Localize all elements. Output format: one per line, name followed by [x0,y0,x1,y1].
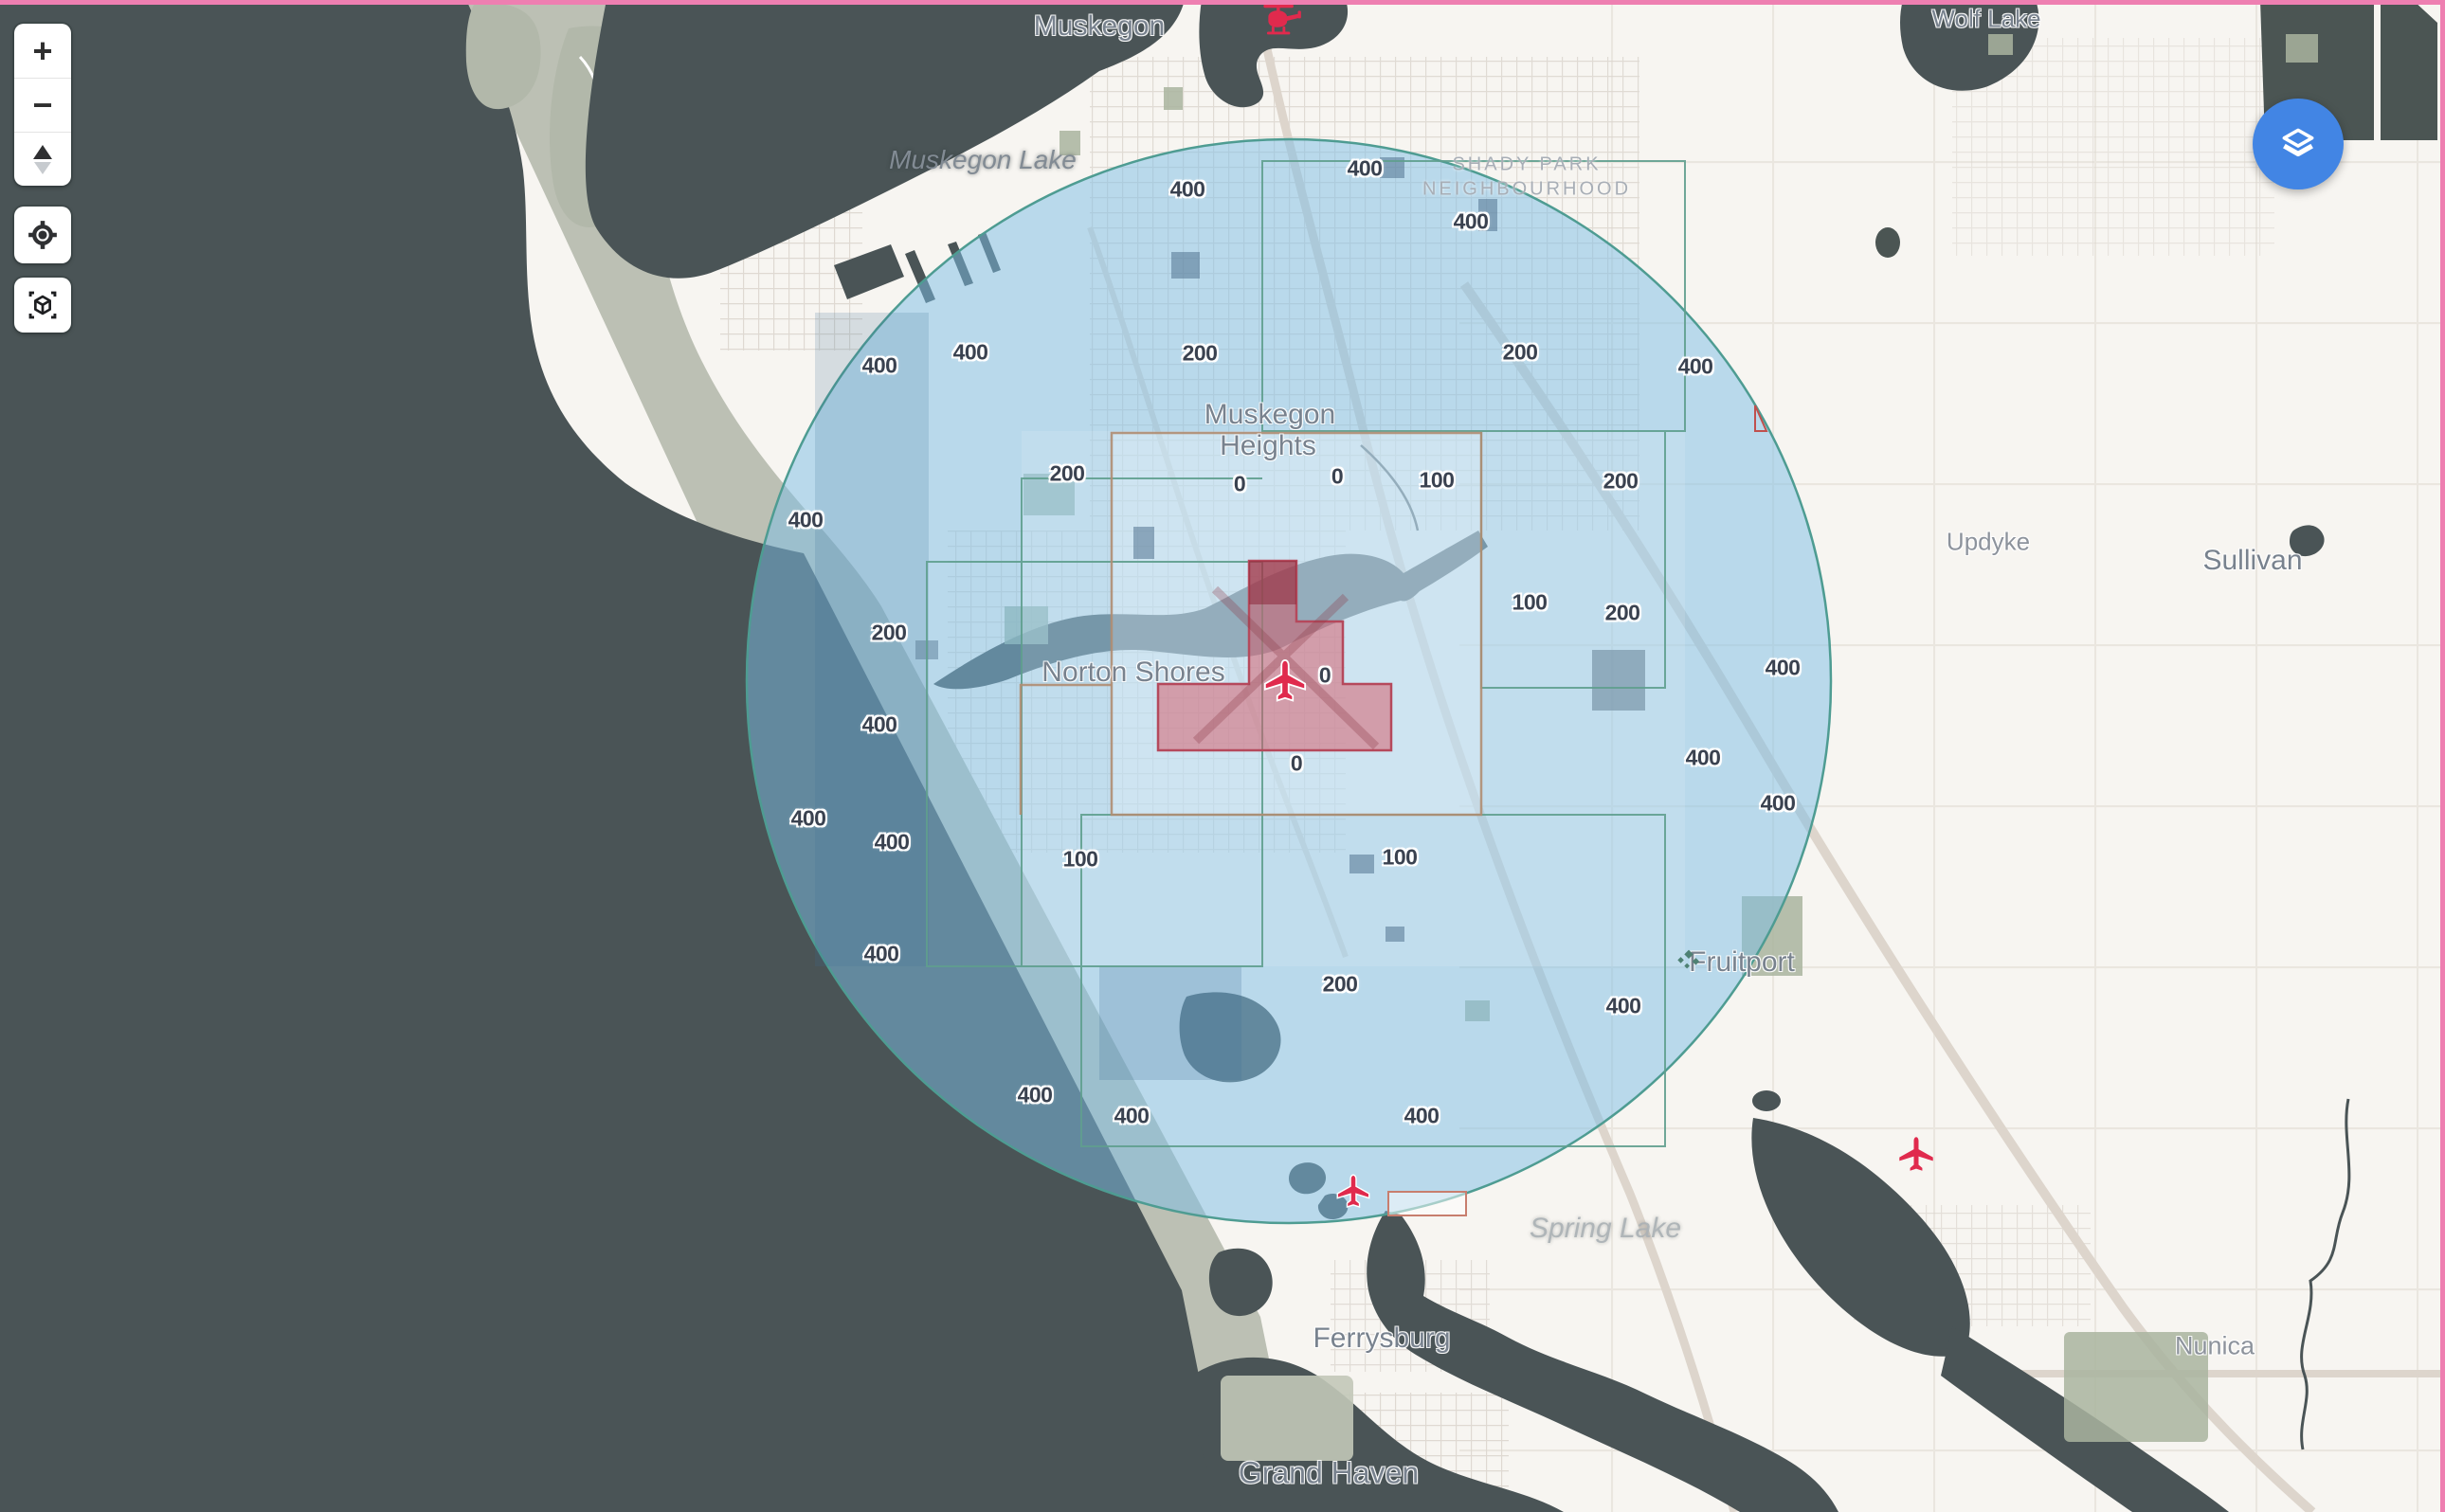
layers-icon [2276,122,2320,166]
locate-button[interactable] [14,207,71,263]
map-canvas[interactable]: MuskegonMuskegon LakeWolf LakeSHADY PARK… [0,0,2445,1512]
markers-layer [0,0,2445,1512]
zoom-out-button[interactable]: − [14,78,71,132]
pitch-toggle-button[interactable] [14,132,71,186]
zoom-in-button[interactable]: + [14,24,71,78]
helicopter-icon[interactable] [1259,0,1303,43]
airplane-icon[interactable] [1896,1134,1936,1174]
pitch-up-icon [33,145,52,159]
plus-icon: + [32,31,52,71]
airplane-icon[interactable] [1262,657,1308,703]
town-icon[interactable] [1675,945,1703,973]
frame-border-right [2440,0,2445,1512]
locate-icon [27,219,59,251]
layers-button[interactable] [2253,99,2344,189]
zoom-control: + − [14,24,71,186]
minus-icon: − [32,85,52,125]
airplane-icon[interactable] [1335,1173,1371,1209]
frame-border-top [0,0,2445,5]
view-3d-button[interactable] [14,278,71,333]
cube-3d-icon [26,288,60,322]
pitch-down-icon [34,162,51,174]
